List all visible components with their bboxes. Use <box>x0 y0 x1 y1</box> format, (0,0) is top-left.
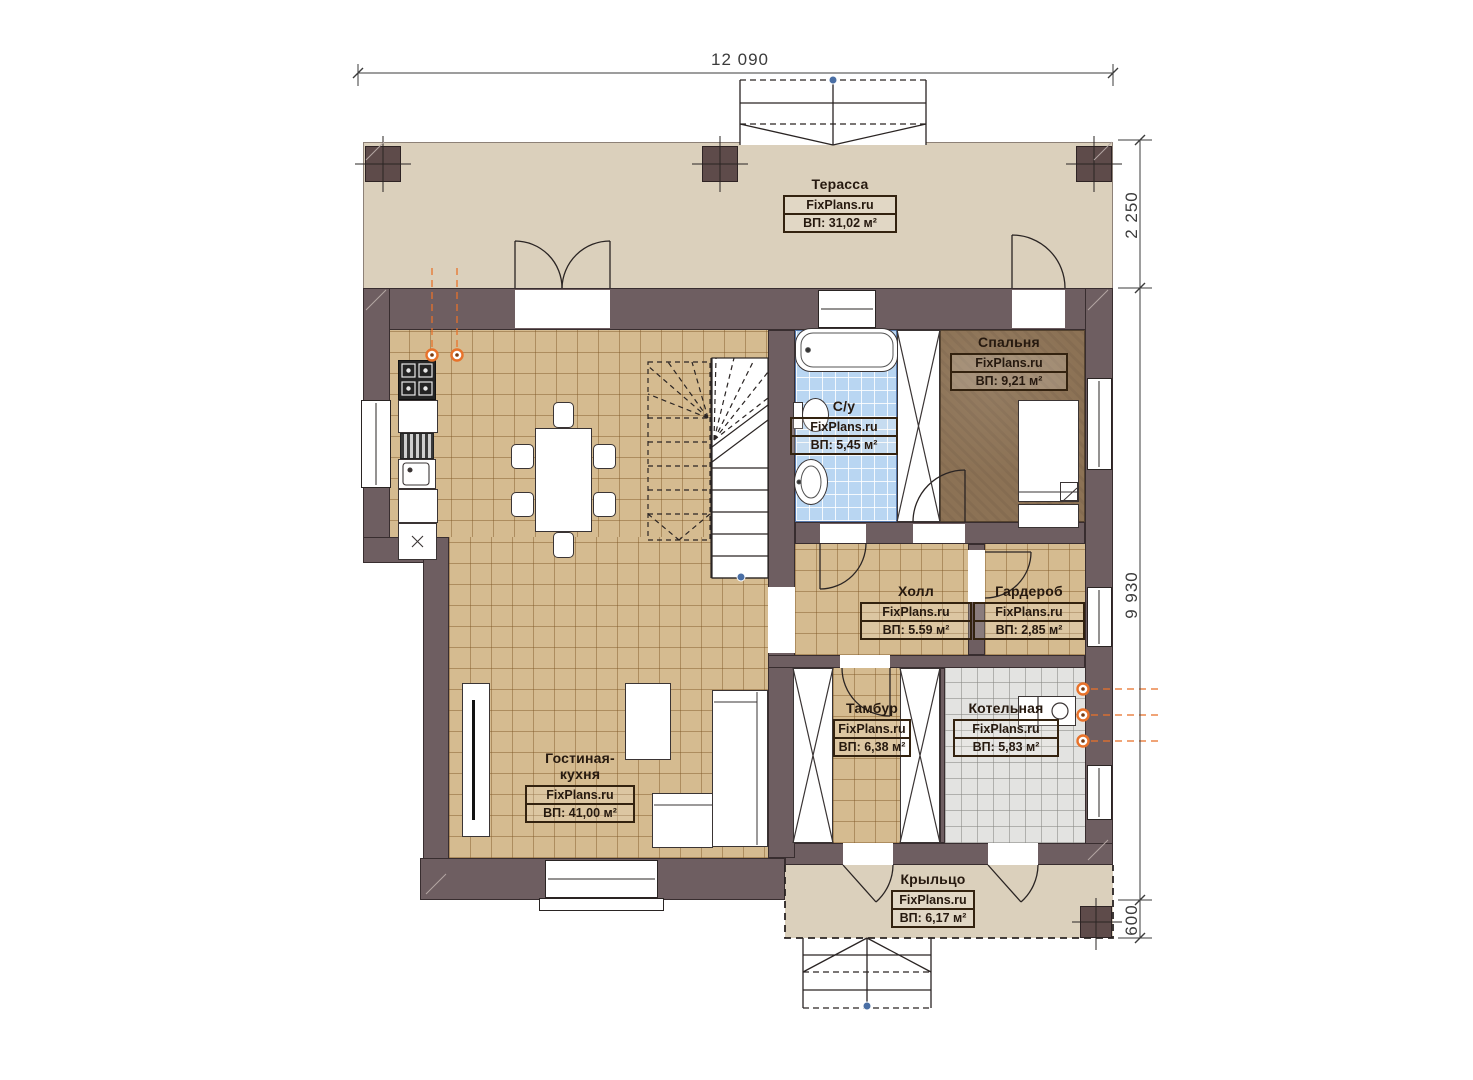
terrace-post-right <box>1076 146 1112 182</box>
watermark: FixPlans.ru <box>833 719 911 739</box>
watermark: FixPlans.ru <box>860 602 972 622</box>
kitchen-sink-cabinet <box>398 459 436 489</box>
passage-living-hall <box>768 587 795 653</box>
window-boiler-right <box>1087 765 1112 820</box>
room-name: Холл <box>860 583 972 599</box>
window-living-bottom <box>545 860 658 898</box>
room-label-living: Гостиная-кухня FixPlans.ru ВП: 41,00 м² <box>525 750 635 823</box>
watermark: FixPlans.ru <box>950 353 1068 373</box>
sofa-horizontal <box>652 793 713 848</box>
floor-plan-canvas: 12 090 2 250 9 930 600 Терасса FixPlans.… <box>0 0 1473 1080</box>
room-label-bathroom: С/у FixPlans.ru ВП: 5,45 м² <box>790 398 898 455</box>
room-name: Гостиная-кухня <box>525 750 635 782</box>
dimension-top: 12 090 <box>698 50 782 70</box>
room-label-porch: Крыльцо FixPlans.ru ВП: 6,17 м² <box>891 871 975 928</box>
kitchen-fridge <box>400 433 434 459</box>
room-label-wardrobe: Гардероб FixPlans.ru ВП: 2,85 м² <box>973 583 1085 640</box>
room-area: ВП: 5,45 м² <box>790 435 898 455</box>
watermark: FixPlans.ru <box>525 785 635 805</box>
tv-stand <box>462 683 490 837</box>
bathtub <box>795 328 898 372</box>
room-name: Гардероб <box>973 583 1085 599</box>
bathroom-sink <box>794 459 828 505</box>
window-bathroom-top <box>818 290 876 328</box>
window-bedroom-right <box>1087 378 1112 470</box>
window-living-bottom-sill <box>539 898 664 911</box>
door-opening-bedroom-terrace <box>1012 290 1065 328</box>
window-kitchen-left <box>361 400 391 488</box>
door-opening-boiler-porch <box>988 843 1038 865</box>
room-label-terrace: Терасса FixPlans.ru ВП: 31,02 м² <box>783 176 897 233</box>
watermark: FixPlans.ru <box>973 602 1085 622</box>
dining-chair <box>511 492 534 517</box>
sofa-vertical <box>712 690 768 847</box>
dining-chair <box>593 444 616 469</box>
room-label-boiler: Котельная FixPlans.ru ВП: 5,83 м² <box>953 700 1059 757</box>
room-area: ВП: 5.59 м² <box>860 620 972 640</box>
dimension-porch-depth: 600 <box>1122 900 1142 940</box>
dining-chair <box>511 444 534 469</box>
room-area: ВП: 6,17 м² <box>891 908 975 928</box>
door-opening-vestibule <box>840 655 890 668</box>
door-opening-vestibule-porch <box>843 843 893 865</box>
porch-post <box>1080 906 1112 938</box>
room-area: ВП: 31,02 м² <box>783 213 897 233</box>
watermark: FixPlans.ru <box>953 719 1059 739</box>
room-label-hall: Холл FixPlans.ru ВП: 5.59 м² <box>860 583 972 640</box>
room-name: Тамбур <box>833 700 911 716</box>
bed-bench <box>1018 504 1079 528</box>
room-name: Спальня <box>950 334 1068 350</box>
room-area: ВП: 9,21 м² <box>950 371 1068 391</box>
room-name: Крыльцо <box>891 871 975 887</box>
porch-steps <box>803 938 931 1008</box>
closet-bath-bedroom <box>897 330 940 522</box>
wall-hall-vestibule <box>768 655 1085 668</box>
kitchen-cabinet-1 <box>398 400 438 433</box>
room-label-bedroom: Спальня FixPlans.ru ВП: 9,21 м² <box>950 334 1068 391</box>
room-area: ВП: 5,83 м² <box>953 737 1059 757</box>
dining-chair <box>553 402 574 428</box>
coffee-table <box>625 683 671 760</box>
watermark: FixPlans.ru <box>783 195 897 215</box>
wall-left-lower <box>423 537 449 900</box>
room-name: Котельная <box>953 700 1059 716</box>
terrace-post-middle <box>702 146 738 182</box>
door-opening-bedroom <box>913 524 965 543</box>
terrace-floor <box>363 142 1113 289</box>
room-area: ВП: 41,00 м² <box>525 803 635 823</box>
dining-chair <box>593 492 616 517</box>
terrace-steps <box>740 80 926 145</box>
wall-top <box>363 288 1113 330</box>
window-wardrobe-right <box>1087 587 1112 647</box>
dimension-terrace-depth: 2 250 <box>1122 185 1142 245</box>
room-label-vestibule: Тамбур FixPlans.ru ВП: 6,38 м² <box>833 700 911 757</box>
watermark: FixPlans.ru <box>891 890 975 910</box>
room-area: ВП: 2,85 м² <box>973 620 1085 640</box>
room-name: Терасса <box>783 176 897 192</box>
kitchen-stove <box>398 360 436 400</box>
wall-bottom-entry <box>785 843 1113 865</box>
dimension-house-depth: 9 930 <box>1122 565 1142 625</box>
kitchen-cabinet-2 <box>398 489 438 523</box>
watermark: FixPlans.ru <box>790 417 898 437</box>
wall-vestibule-boiler <box>940 668 945 843</box>
dining-table <box>535 428 592 532</box>
room-area: ВП: 6,38 м² <box>833 737 911 757</box>
pillow <box>1060 482 1078 501</box>
room-name: С/у <box>790 398 898 414</box>
door-opening-bathroom <box>820 524 866 543</box>
kitchen-cabinet-3 <box>398 523 437 560</box>
dining-chair <box>553 532 574 558</box>
terrace-post-left <box>365 146 401 182</box>
closet-vestibule-left <box>793 668 833 843</box>
door-opening-terrace-french <box>515 290 610 328</box>
